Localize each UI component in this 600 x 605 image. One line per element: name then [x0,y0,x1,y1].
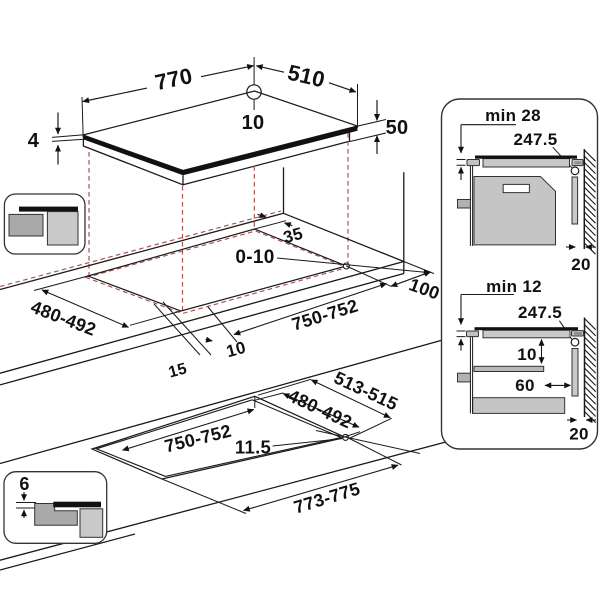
svg-text:20: 20 [569,425,589,444]
svg-text:10: 10 [242,112,265,134]
svg-text:6: 6 [19,474,29,494]
svg-text:min 12: min 12 [486,277,542,296]
svg-text:4: 4 [28,130,40,152]
svg-text:247.5: 247.5 [513,130,557,149]
svg-text:min 28: min 28 [485,106,541,125]
svg-text:60: 60 [515,376,535,395]
svg-text:11.5: 11.5 [235,437,271,458]
svg-text:10: 10 [517,345,537,364]
svg-text:20: 20 [571,255,591,274]
svg-text:0-10: 0-10 [235,247,274,268]
svg-text:50: 50 [386,117,409,139]
svg-text:247.5: 247.5 [518,303,562,322]
